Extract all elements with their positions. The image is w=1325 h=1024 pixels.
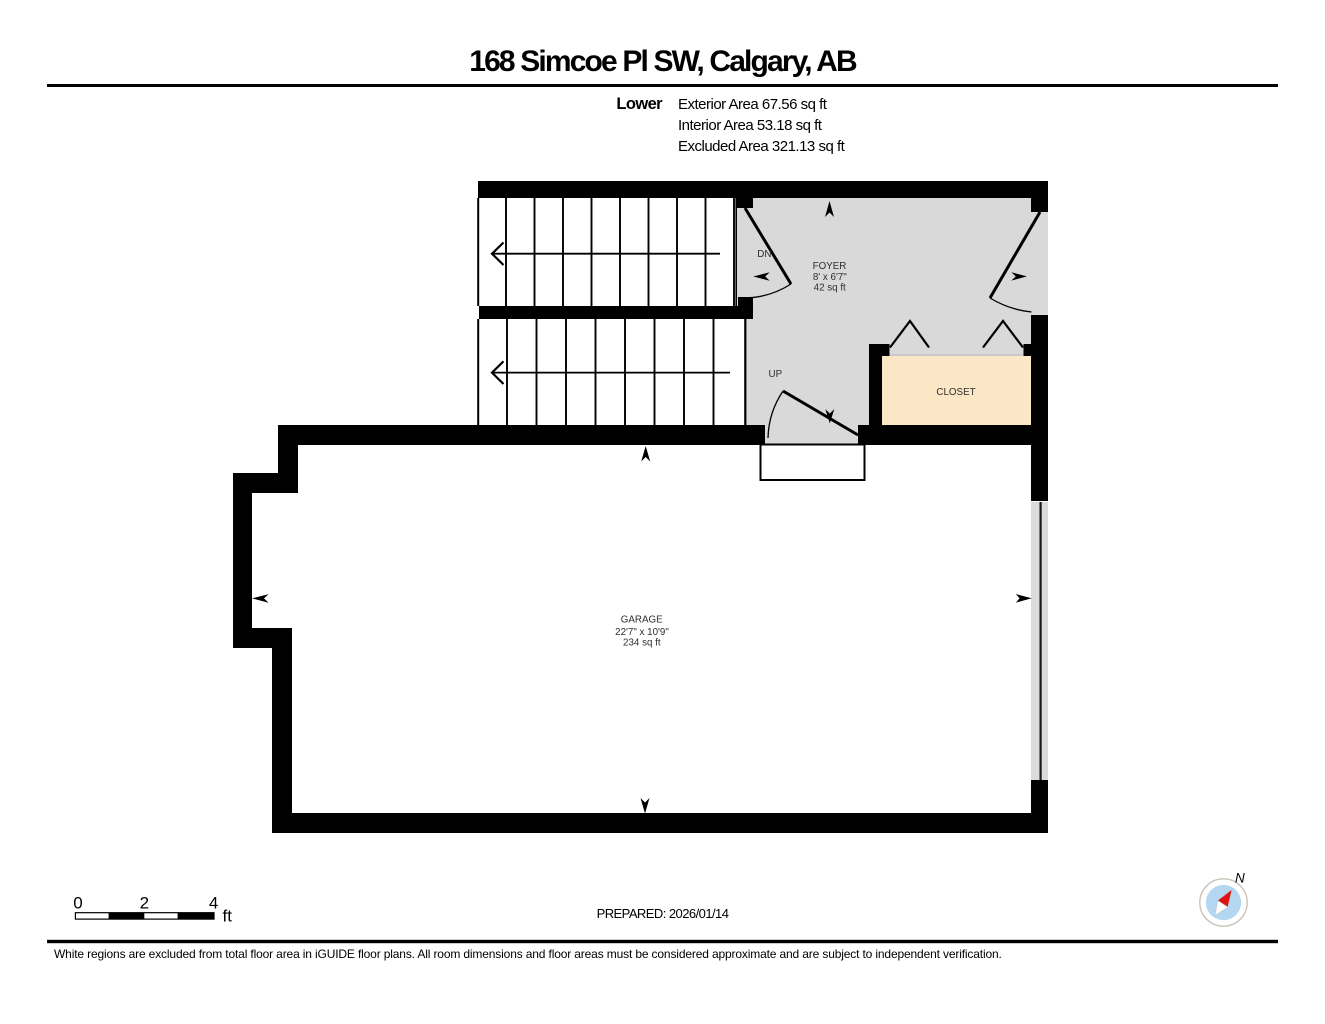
svg-text:DN: DN (757, 249, 771, 260)
svg-text:GARAGE: GARAGE (621, 614, 663, 625)
svg-text:UP: UP (769, 369, 783, 380)
svg-text:FOYER: FOYER (813, 261, 847, 272)
svg-text:234 sq ft: 234 sq ft (623, 638, 661, 649)
svg-text:22'7" x 10'9": 22'7" x 10'9" (615, 627, 669, 638)
svg-text:8' x 6'7": 8' x 6'7" (813, 272, 847, 283)
svg-text:N: N (1235, 871, 1245, 886)
svg-text:42 sq ft: 42 sq ft (814, 282, 846, 293)
svg-text:CLOSET: CLOSET (936, 387, 975, 398)
